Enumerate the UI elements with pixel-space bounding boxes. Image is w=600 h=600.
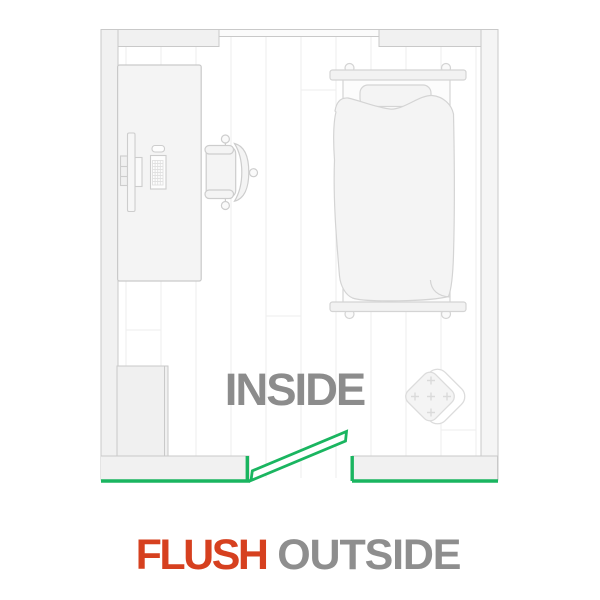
svg-text:FLUSH OUTSIDE: FLUSH OUTSIDE: [136, 531, 461, 579]
svg-text:INSIDE: INSIDE: [225, 364, 365, 415]
